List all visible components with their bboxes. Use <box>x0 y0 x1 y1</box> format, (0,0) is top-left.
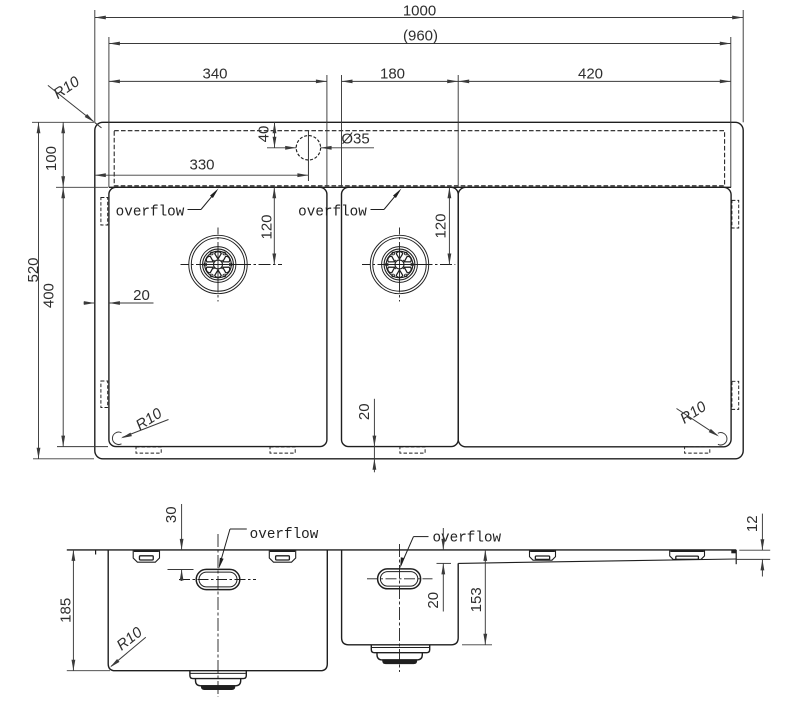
svg-text:330: 330 <box>189 157 214 174</box>
svg-text:100: 100 <box>43 146 60 171</box>
svg-text:overflow: overflow <box>298 205 367 221</box>
svg-text:12: 12 <box>744 515 761 532</box>
svg-text:340: 340 <box>202 66 227 83</box>
svg-text:40: 40 <box>255 126 272 143</box>
svg-text:1000: 1000 <box>403 2 436 19</box>
svg-text:180: 180 <box>380 66 405 83</box>
svg-text:185: 185 <box>57 598 74 623</box>
svg-text:120: 120 <box>259 214 276 239</box>
svg-text:overflow: overflow <box>250 527 319 543</box>
svg-text:(960): (960) <box>403 27 438 44</box>
svg-text:520: 520 <box>25 257 42 282</box>
svg-text:30: 30 <box>163 506 180 523</box>
svg-text:20: 20 <box>133 287 150 304</box>
svg-text:R10: R10 <box>113 623 146 654</box>
svg-text:R10: R10 <box>50 73 83 103</box>
svg-text:overflow: overflow <box>116 205 185 221</box>
svg-text:400: 400 <box>41 283 58 308</box>
svg-text:120: 120 <box>433 213 450 238</box>
svg-text:20: 20 <box>356 403 373 420</box>
svg-text:20: 20 <box>425 592 442 609</box>
svg-text:R10: R10 <box>133 405 166 435</box>
svg-text:Ø35: Ø35 <box>341 131 369 148</box>
svg-text:420: 420 <box>578 66 603 83</box>
svg-text:153: 153 <box>468 587 485 612</box>
